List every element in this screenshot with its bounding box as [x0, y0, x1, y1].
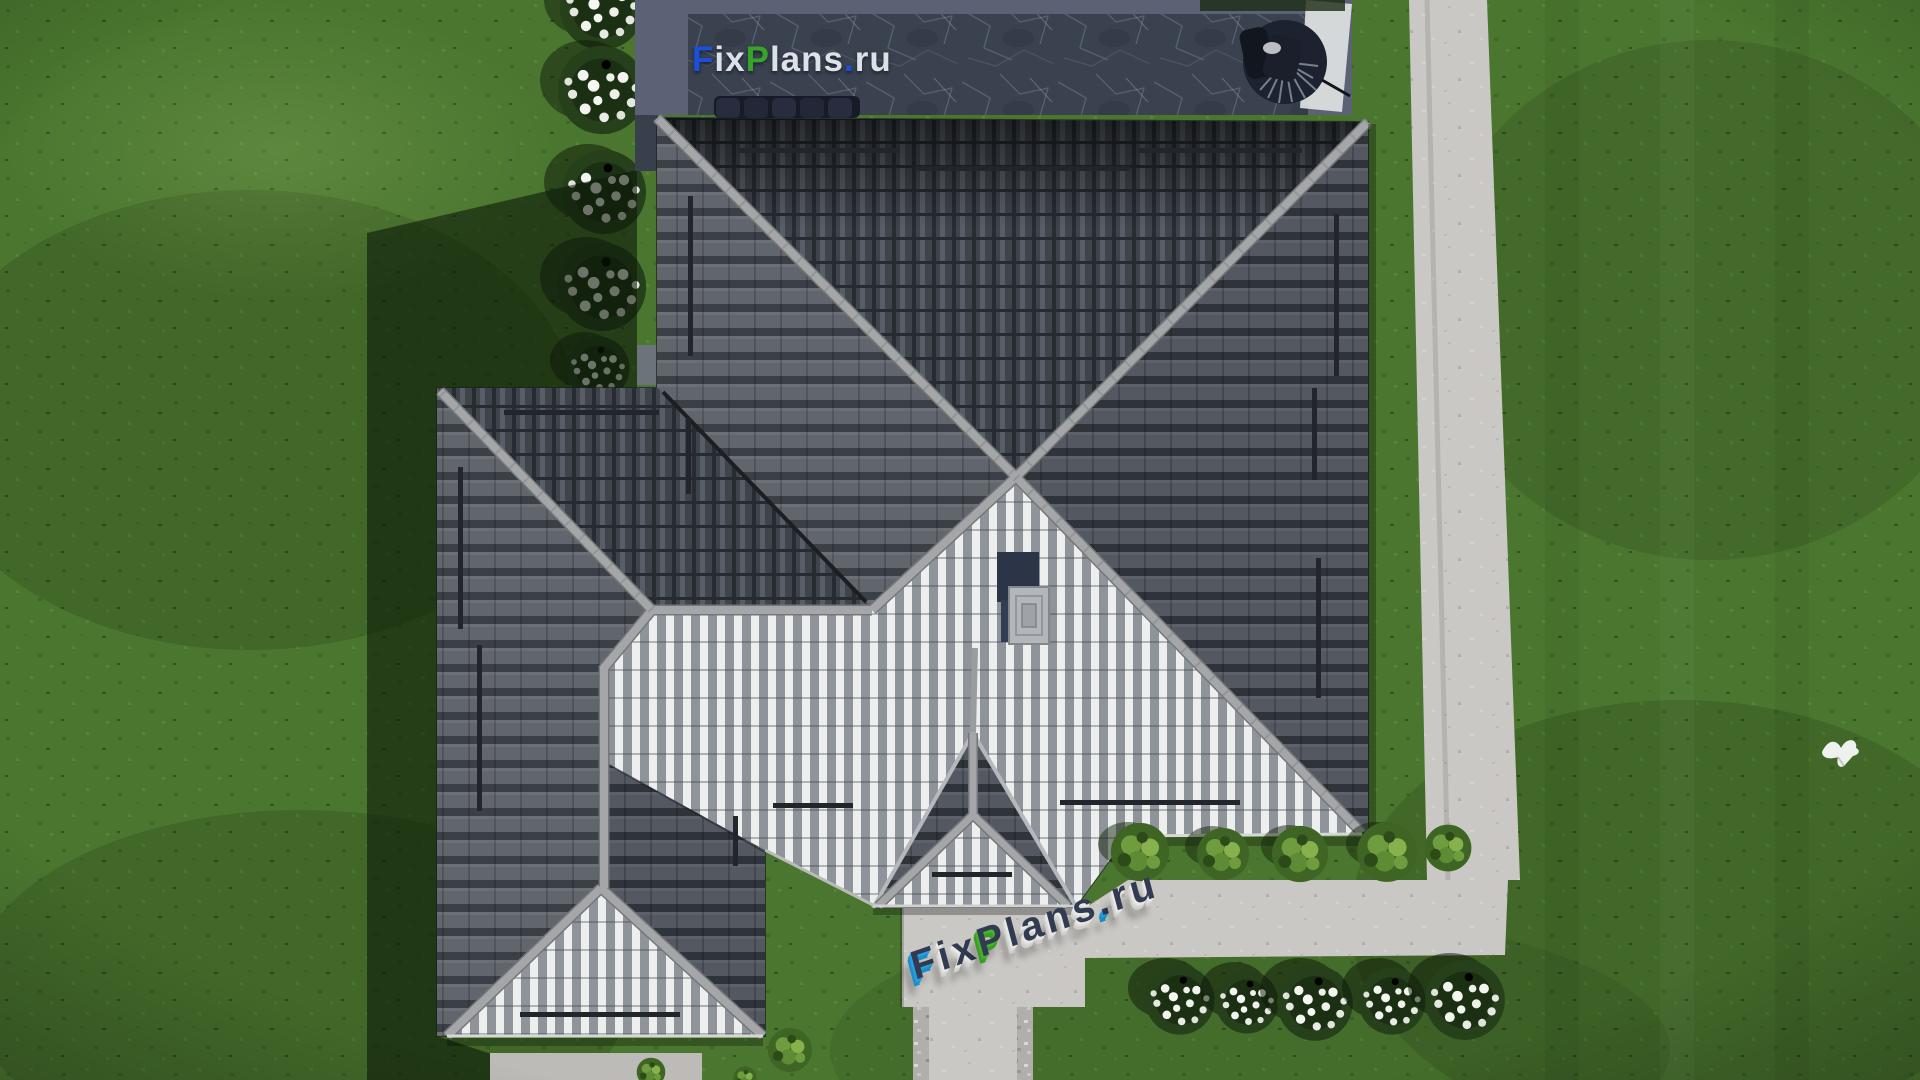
vignette: [0, 0, 1920, 1080]
scene-svg: [0, 0, 1920, 1080]
aerial-render: FixPlans.ru FixPlans.ru: [0, 0, 1920, 1080]
